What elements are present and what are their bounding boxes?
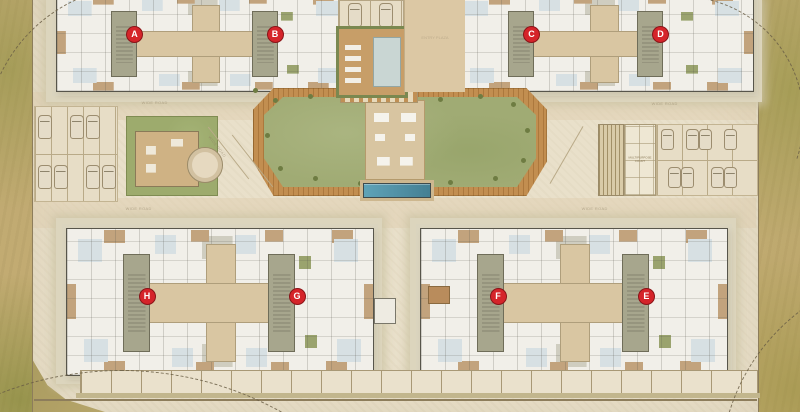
- multipurpose-court: MULTIPURPOSE COURT: [624, 124, 656, 196]
- parked-car: [724, 167, 737, 188]
- parking-top-center: [338, 0, 404, 27]
- building-badge-h: H: [139, 288, 156, 305]
- road-label: WIDE ROAD: [142, 101, 168, 106]
- road-label: WIDE ROAD: [582, 207, 608, 212]
- pool-loungers: [345, 39, 361, 83]
- corner-arc-topright: [690, 0, 800, 160]
- dashed-arc: [720, 280, 800, 412]
- entry-plaza-label: ENTRY PLAZA: [411, 36, 459, 41]
- clubhouse-lawn: [126, 116, 218, 196]
- stair-core: [637, 11, 664, 76]
- corridor: [148, 283, 270, 323]
- parked-car: [668, 167, 681, 188]
- court-label: MULTIPURPOSE COURT: [623, 157, 657, 164]
- dashed-arc: [0, 370, 300, 412]
- entry-plaza: ENTRY PLAZA: [404, 0, 465, 92]
- residential-block-fe: F E: [420, 228, 728, 376]
- parked-car: [86, 165, 100, 189]
- corridor: [135, 31, 253, 58]
- stair-core: [508, 11, 535, 76]
- corner-arc-bottomleft: [0, 355, 300, 412]
- entry-ramp: [428, 286, 450, 304]
- water-feature: [363, 183, 431, 198]
- swimming-pool-area: [336, 26, 408, 98]
- parked-car: [38, 165, 52, 189]
- pergola-plaza: [365, 100, 425, 180]
- building-badge-e: E: [638, 288, 655, 305]
- stair-core: [252, 11, 278, 76]
- residential-block-hg: H G: [66, 228, 374, 376]
- amphitheater-steps: [598, 124, 624, 196]
- dashed-arc: [690, 0, 800, 160]
- corner-arc-bottomright: [690, 280, 800, 412]
- dashed-arc: [0, 0, 120, 130]
- parked-car: [661, 129, 674, 150]
- parked-car: [54, 165, 68, 189]
- swimming-pool: [373, 37, 401, 87]
- corridor: [533, 31, 653, 58]
- road-label: WIDE ROAD: [126, 207, 152, 212]
- site-plan-canvas: A B C D H G F E: [0, 0, 800, 412]
- parked-car: [379, 3, 393, 27]
- shrub-dots: [253, 88, 258, 93]
- central-courtyard: [253, 88, 547, 196]
- corridor: [502, 283, 624, 323]
- parked-car: [102, 165, 116, 189]
- road-label: WIDE ROAD: [652, 102, 678, 107]
- building-badge-b: B: [267, 26, 284, 43]
- parked-car: [348, 3, 362, 27]
- corner-arc-topleft: [0, 0, 120, 130]
- building-badge-d: D: [652, 26, 669, 43]
- connector-structure: [374, 298, 396, 324]
- building-badge-f: F: [490, 288, 507, 305]
- building-badge-g: G: [289, 288, 306, 305]
- parked-car: [711, 167, 724, 188]
- parked-car: [681, 167, 694, 188]
